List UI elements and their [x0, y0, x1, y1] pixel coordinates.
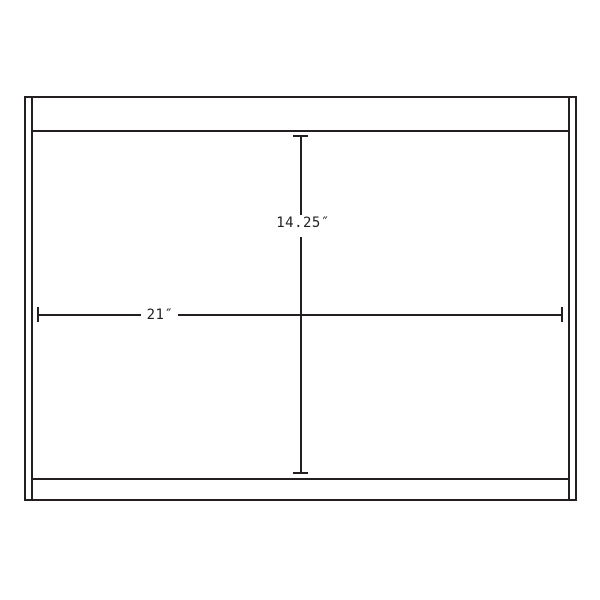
bottom-rail-line — [33, 478, 568, 480]
height-dim-label: 14.25″ — [275, 216, 331, 230]
width-dim-line-right — [178, 314, 562, 316]
top-rail-line — [33, 130, 568, 132]
left-side-panel-line — [31, 97, 33, 500]
width-dim-line-left — [38, 314, 141, 316]
height-dim-line-lower — [300, 237, 302, 473]
width-dim-right-cap — [561, 307, 563, 322]
width-dim-label: 21″ — [146, 308, 175, 322]
height-dim-line-upper — [300, 135, 302, 215]
dimension-diagram: 14.25″ 21″ — [0, 0, 600, 600]
height-dim-bottom-cap — [293, 472, 308, 474]
right-side-panel-line — [568, 97, 570, 500]
